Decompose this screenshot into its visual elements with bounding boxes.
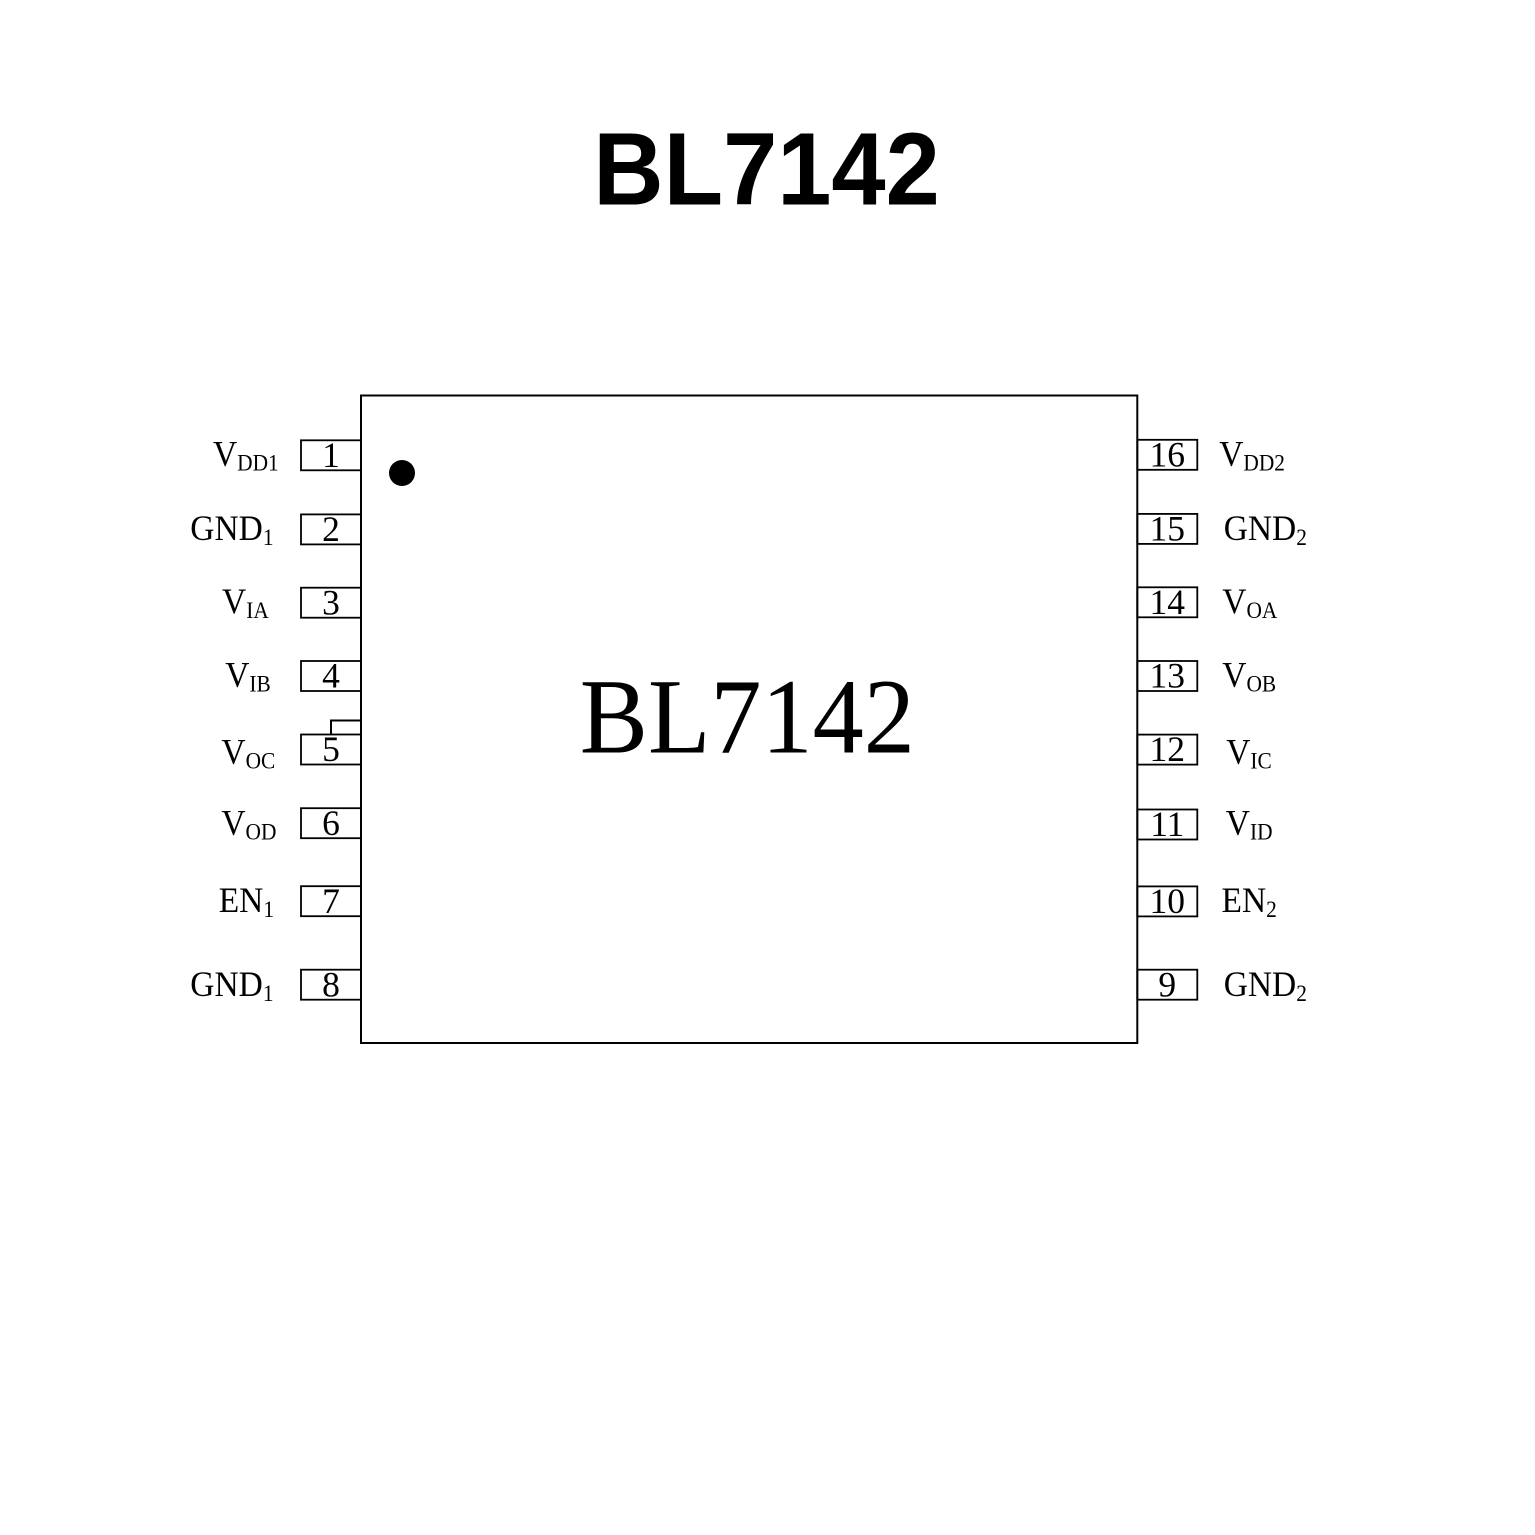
svg-text:8: 8 [322,964,340,1004]
svg-text:BL7142: BL7142 [593,112,940,227]
svg-text:15: 15 [1150,509,1186,549]
svg-text:7: 7 [322,881,340,921]
svg-text:BL7142: BL7142 [580,658,915,776]
svg-text:GND1: GND1 [190,508,273,550]
svg-text:4: 4 [322,656,340,696]
svg-text:9: 9 [1158,964,1176,1004]
svg-text:13: 13 [1150,656,1186,696]
svg-text:12: 12 [1150,729,1186,769]
svg-text:5: 5 [322,729,340,769]
svg-text:16: 16 [1150,434,1186,474]
svg-text:14: 14 [1150,582,1186,622]
svg-text:2: 2 [322,509,340,549]
svg-text:10: 10 [1150,881,1186,921]
svg-text:GND2: GND2 [1224,964,1307,1006]
svg-text:GND1: GND1 [190,964,273,1006]
svg-text:1: 1 [322,435,340,475]
svg-text:3: 3 [322,582,340,622]
svg-text:11: 11 [1150,804,1184,844]
svg-text:6: 6 [322,803,340,843]
svg-text:GND2: GND2 [1224,508,1307,550]
